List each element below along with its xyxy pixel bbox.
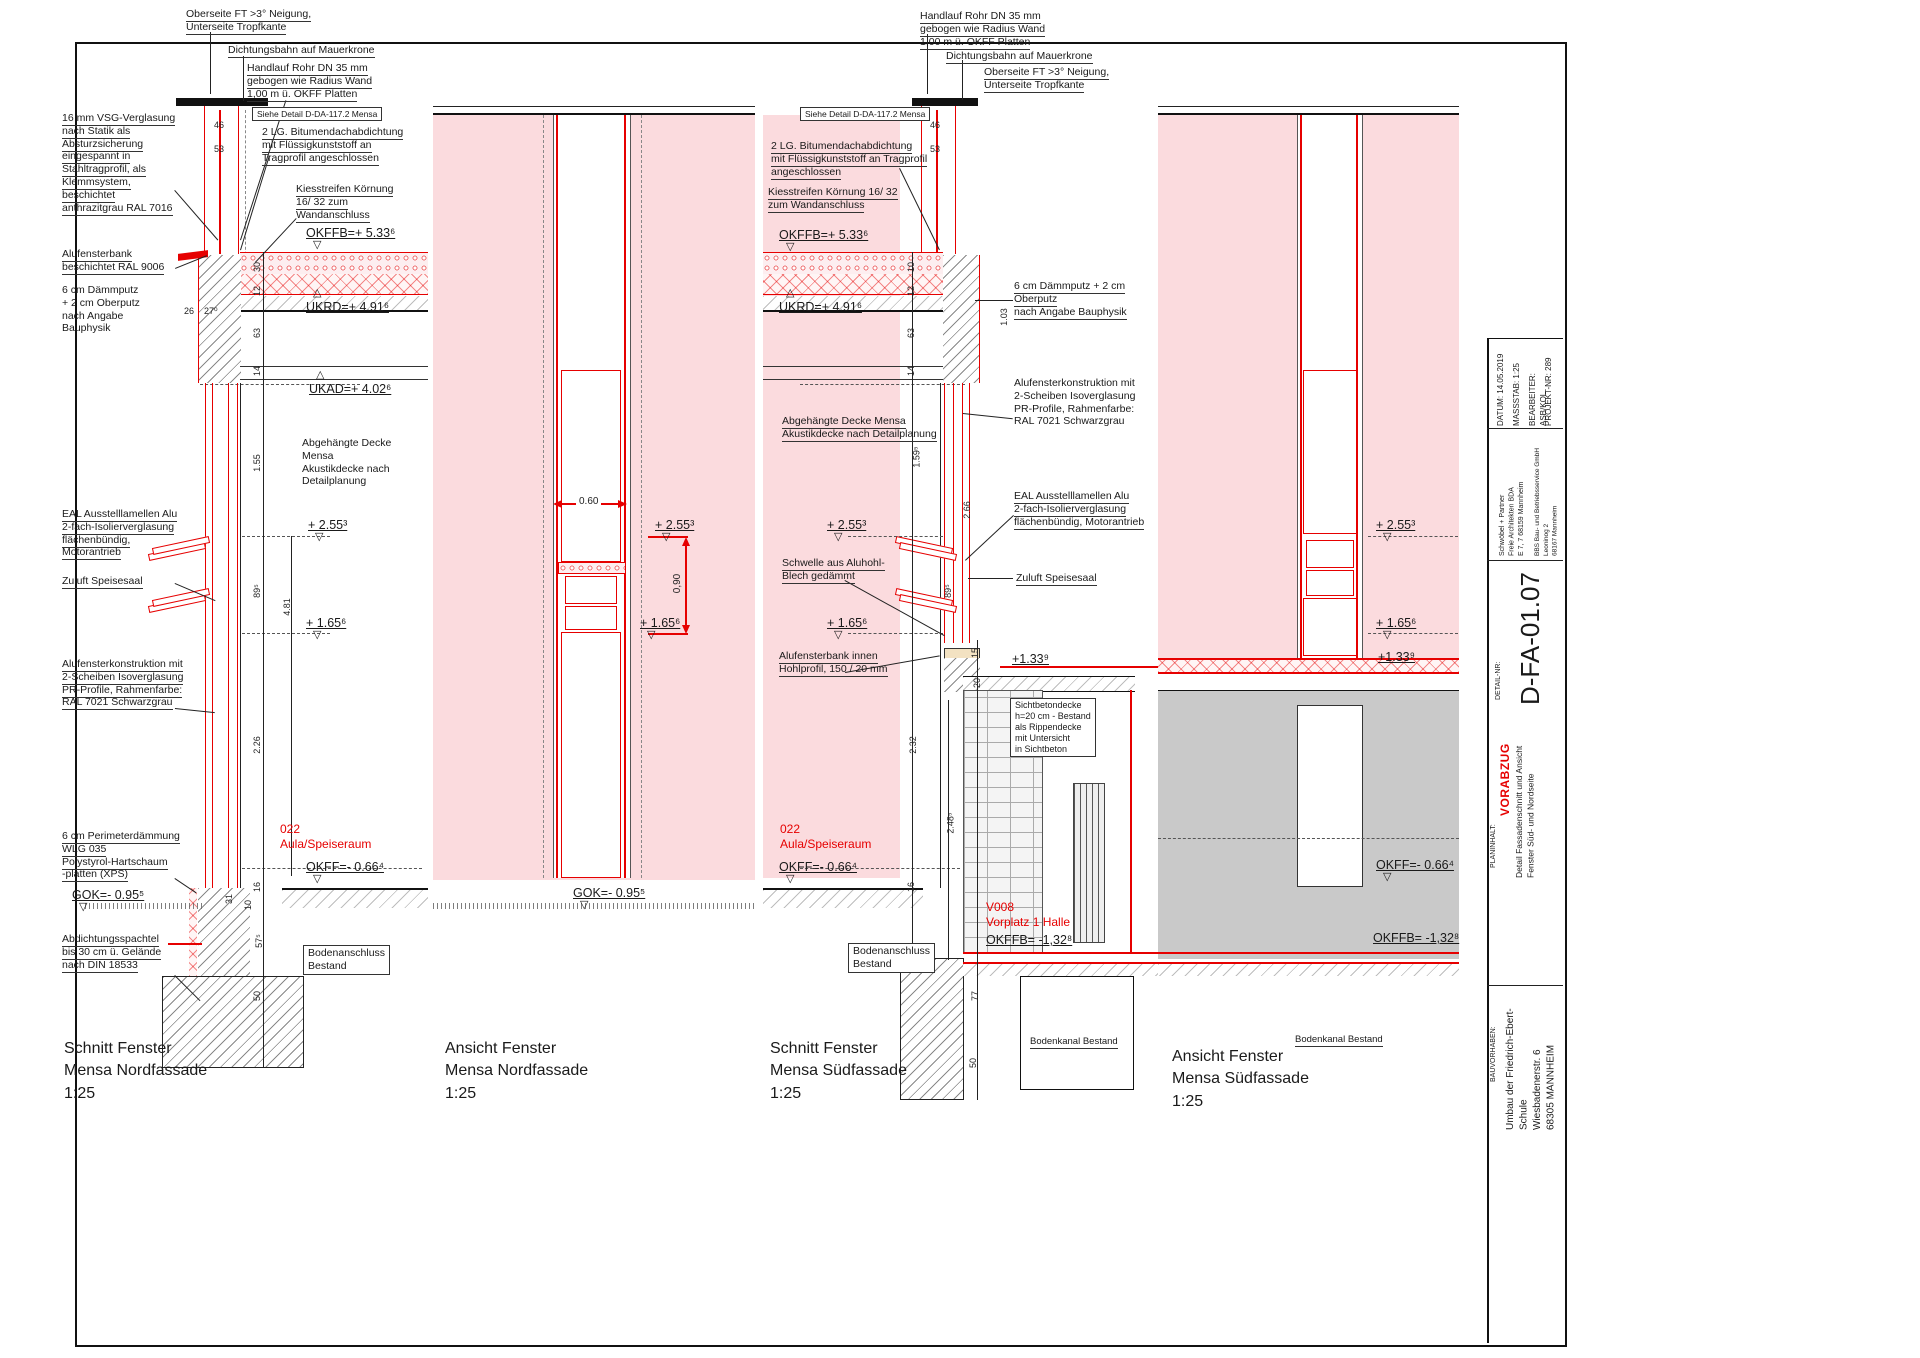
detail-reference-box: Siehe Detail D-DA-117.2 Mensa (252, 107, 382, 121)
dim-159: 1.59⁵ (912, 446, 922, 467)
panel-title-ansicht-nord: Ansicht Fenster Mensa Nordfassade 1:25 (445, 1038, 588, 1105)
elevation-okff: OKFF=- 0.66⁴▽ (1376, 858, 1454, 872)
dim-14: 14 (906, 366, 916, 376)
ground-line (433, 903, 755, 909)
cut-line-dashed (641, 115, 642, 878)
leader-line (975, 300, 1013, 301)
detail-reference-box: Siehe Detail D-DA-117.2 Mensa (800, 107, 930, 121)
dim-53: 53 (214, 144, 224, 154)
level-marker-icon: ▽ (786, 874, 794, 885)
date: DATUM: 14.05.2019 (1496, 341, 1507, 426)
floor-slab (763, 888, 923, 908)
dim-248: 2.48⁵ (946, 812, 956, 833)
project-name: Umbau der Friedrich-Ebert-Schule Wiesbad… (1504, 990, 1558, 1130)
floor-line-red (1158, 952, 1459, 954)
elevation-okff: OKFF=- 0.66⁴▽ (779, 860, 857, 874)
radiator (1073, 783, 1105, 943)
elevation-165: + 1.65⁶▽ (1376, 616, 1416, 630)
level-marker-icon: ▽ (580, 900, 588, 911)
level-marker-icon: △ (313, 288, 321, 299)
annotation-alukonstruktion: Alufensterkonstruktion mit 2-Scheiben Is… (62, 658, 183, 709)
dim-16: 16 (906, 882, 916, 892)
elevation-165: + 1.65⁶▽ (827, 616, 867, 630)
lamella-vent-upper (895, 542, 957, 564)
window-pane-lower (1303, 598, 1357, 656)
window-jamb (1300, 115, 1302, 665)
elevation-255: + 2.55³▽ (1376, 518, 1415, 532)
window-frame-inner (228, 383, 238, 888)
dim-line-red (685, 540, 687, 630)
panel-title-schnitt-sued: Schnitt Fenster Mensa Südfassade 1:25 (770, 1038, 907, 1105)
window-pane-upper (1303, 370, 1357, 534)
annotation-perimeter: 6 cm Perimeterdämmung WLG 035 Polystyrol… (62, 830, 180, 881)
level-marker-icon: ▽ (1383, 872, 1391, 883)
elevation-255: + 2.55³▽ (308, 518, 347, 532)
dim-line (977, 640, 978, 1100)
level-marker-icon: ▽ (834, 532, 842, 543)
glass-center-line (936, 110, 938, 254)
leader-line (210, 32, 211, 94)
dim-arrow (618, 500, 627, 508)
annotation-decke: Abgehängte Decke Mensa Akustikdecke nach… (782, 415, 937, 441)
window-pane-vent2 (565, 606, 617, 630)
vorabzug-stamp: VORABZUG (1497, 736, 1513, 816)
dim-16: 16 (252, 882, 262, 892)
floor-slab (282, 888, 428, 908)
plan-content-label: PLANINHALT: (1489, 798, 1498, 868)
level-marker-icon: ▽ (662, 532, 670, 543)
dim-14: 14 (252, 366, 262, 376)
floor-hatch (1158, 964, 1459, 976)
parapet-line (1158, 106, 1459, 107)
sill-line-red (1158, 672, 1459, 674)
level-marker-icon: ▽ (313, 630, 321, 641)
room-label: 022 Aula/Speiseraum (780, 822, 871, 851)
dim-46: 46 (930, 120, 940, 130)
dim-arrow (553, 500, 562, 508)
leader-line (968, 578, 1013, 579)
elevation-ukrd: UKRD=+ 4.91⁶△ (306, 300, 389, 314)
dim-57: 57⁵ (254, 934, 264, 948)
dim-arrow (682, 625, 690, 634)
annotation-fensterbank: Alufensterbank beschichtet RAL 9006 (62, 248, 164, 274)
annotation-alukonstruktion: Alufensterkonstruktion mit 2-Scheiben Is… (1014, 377, 1135, 428)
dim-30: 30 (252, 262, 262, 272)
level-marker-icon: ▽ (79, 902, 87, 913)
dim-103: 1.03 (999, 308, 1009, 326)
level-marker-icon: ▽ (315, 532, 323, 543)
drawing-sheet: 16 mm VSG-Verglasung nach Statik als Abs… (0, 0, 1920, 1358)
window-pane-vent2 (1306, 570, 1354, 596)
scale: MASSSTAB: 1:25 (1512, 341, 1523, 426)
dim-15: 15 (970, 648, 980, 658)
dim-63: 63 (906, 328, 916, 338)
ceiling-band (240, 366, 428, 380)
annotation-zuluft: Zuluft Speisesaal (62, 575, 143, 588)
base-wall (900, 958, 964, 1100)
annotation-bodenkanal: Bodenkanal Bestand (1295, 1034, 1383, 1046)
dim-63: 63 (252, 328, 262, 338)
annotation-handlauf: Handlauf Rohr DN 35 mm gebogen wie Radiu… (920, 10, 1045, 48)
level-line-red (1000, 666, 1158, 668)
dim-12: 12 (906, 286, 916, 296)
parapet-cap (912, 98, 978, 106)
annotation-oberseite: Oberseite FT >3° Neigung, Unterseite Tro… (984, 66, 1109, 92)
level-marker-icon: △ (316, 370, 324, 381)
annotation-vsg: 16 mm VSG-Verglasung nach Statik als Abs… (62, 112, 180, 214)
window-bestand (1297, 705, 1363, 887)
dim-090: 0,90 (672, 574, 683, 593)
room-label: V008 Vorplatz 1 Halle (986, 900, 1070, 929)
level-marker-icon: △ (786, 288, 794, 299)
annotation-bodenanschluss: Bodenanschluss Bestand (848, 943, 935, 973)
masonry-wall (943, 255, 980, 383)
wall-line (940, 383, 941, 888)
elevation-gok: GOK=- 0.95⁵▽ (573, 886, 645, 900)
elevation-ukad: UKAD=+ 4.02⁶△ (309, 382, 391, 396)
ground-line (85, 903, 203, 909)
annotation-fensterbank-innen: Alufensterbank innen Hohlprofil, 150 / 2… (779, 650, 888, 676)
detail-number: D-FA-01.07 (1513, 555, 1548, 705)
dim-line (912, 252, 913, 952)
level-dashed (1368, 536, 1458, 537)
level-marker-icon: ▽ (313, 874, 321, 885)
bodenkanal-pit (1020, 976, 1134, 1090)
panel-title-schnitt-nord: Schnitt Fenster Mensa Nordfassade 1:25 (64, 1038, 207, 1105)
title-block-divider (1487, 428, 1563, 429)
dim-53: 53 (930, 144, 940, 154)
axis-dashed (245, 110, 246, 270)
vorplatz-floor-red (963, 952, 1158, 954)
wall-line (240, 383, 241, 888)
annotation-dichtungsbahn: Dichtungsbahn auf Mauerkrone (946, 50, 1093, 63)
annotation-sichtbeton: Sichtbetondecke h=20 cm - Bestand als Ri… (1010, 698, 1096, 757)
dim-10: 10 (243, 900, 253, 910)
annotation-handlauf: Handlauf Rohr DN 35 mm gebogen wie Radiu… (247, 62, 372, 100)
dim-226: 2.26 (252, 736, 262, 754)
dim-89: 89⁵ (943, 584, 953, 598)
annotation-abdichtung: Abdichtungsspachtel bis 30 cm ü. Gelände… (62, 933, 161, 971)
dim-50: 50 (252, 991, 262, 1001)
roof-insulation (240, 274, 428, 295)
elevation-165: + 1.65⁶▽ (640, 616, 680, 630)
elevation-okff: OKFF=- 0.66⁴▽ (306, 860, 384, 874)
annotation-bodenanschluss: Bodenanschluss Bestand (303, 945, 390, 975)
dim-arrow (682, 537, 690, 546)
title-block-divider (1487, 985, 1563, 986)
annotation-daemmputz: 6 cm Dämmputz + 2 cm Oberputz nach Angab… (1014, 280, 1127, 318)
dim-10: 10 (906, 262, 916, 272)
elevation-ukrd: UKRD=+ 4.91⁶△ (779, 300, 862, 314)
level-dashed (1158, 838, 1459, 839)
red-step-line (168, 943, 202, 945)
annotation-bodenkanal: Bodenkanal Bestand (1030, 1036, 1118, 1048)
annotation-zuluft: Zuluft Speisesaal (1016, 572, 1097, 585)
dim-89: 89⁵ (252, 584, 262, 598)
dim-27: 27⁰ (204, 306, 218, 317)
dim-20: 20 (972, 678, 982, 688)
dim-31: 31 (224, 894, 234, 904)
annotation-eal: EAL Ausstelllamellen Alu 2-fach-Isolierv… (1014, 490, 1144, 528)
project-label: BAUVORHABEN: (1489, 990, 1498, 1082)
elevation-133: +1.33⁹ (1012, 652, 1049, 666)
detail-number-label: DETAIL-NR: (1494, 640, 1503, 700)
annotation-decke: Abgehängte Decke Mensa Akustikdecke nach… (302, 437, 391, 488)
dim-266: 2.66 (962, 501, 972, 519)
window-jamb (624, 115, 626, 878)
level-marker-icon: ▽ (786, 242, 794, 253)
elevation-255: + 2.55³▽ (655, 518, 694, 532)
elevation-okffb-vorplatz: OKFFB= -1,32⁸ (1373, 931, 1459, 945)
gravel-strip (240, 252, 428, 275)
annotation-dichtungsbahn: Dichtungsbahn auf Mauerkrone (228, 44, 375, 57)
plan-content: Detail Fassadenschnitt und Ansicht Fenst… (1514, 700, 1537, 878)
client-firm: BBS Bau- und Betriebsservice GmbH Leonin… (1534, 432, 1560, 556)
window-jamb (556, 115, 558, 878)
elevation-okffb-vorplatz: OKFFB= -1,32⁸ (986, 933, 1072, 947)
elevation-okffb: OKFFB=+ 5.33⁶▽ (779, 228, 868, 242)
level-marker-icon: ▽ (1383, 630, 1391, 641)
title-block-divider (1487, 338, 1563, 339)
annotation-daemmputz: 6 cm Dämmputz + 2 cm Oberputz nach Angab… (62, 284, 140, 335)
level-dashed (1368, 633, 1458, 634)
lamella-vent-lower (148, 594, 210, 616)
room-label: 022 Aula/Speiseraum (280, 822, 371, 851)
elevation-okffb: OKFFB=+ 5.33⁶▽ (306, 226, 395, 240)
annotation-schwelle: Schwelle aus Aluhohl- Blech gedämmt (782, 557, 885, 583)
annotation-bitumen: 2 LG. Bitumendachabdichtung mit Flüssigk… (771, 140, 927, 178)
level-marker-icon: ▽ (834, 630, 842, 641)
window-pane-lower (561, 632, 621, 878)
xps-perimeter (189, 888, 197, 976)
annotation-kiesstreifen: Kiesstreifen Körnung 16/ 32 zum Wandansc… (296, 183, 393, 221)
dim-232: 2.32 (908, 736, 918, 754)
dim-155: 1.55 (252, 454, 262, 472)
dim-26: 26 (184, 306, 194, 316)
level-dashed (848, 633, 943, 634)
level-marker-icon: ▽ (313, 240, 321, 251)
editor: BEARBEITER: ASB/KOL (1528, 341, 1550, 426)
level-dashed (848, 536, 943, 537)
window-pane-vent1 (565, 576, 617, 604)
level-marker-icon: ▽ (1383, 532, 1391, 543)
panel-title-ansicht-sued: Ansicht Fenster Mensa Südfassade 1:25 (1172, 1046, 1309, 1113)
level-marker-icon: ▽ (647, 630, 655, 641)
elevation-133: +1.33⁹ (1378, 650, 1415, 664)
dim-46: 46 (214, 120, 224, 130)
elevation-165: + 1.65⁶▽ (306, 616, 346, 630)
dim-12: 12 (252, 286, 262, 296)
architect-firm: Schwöbel + Partner Freie Architekten BDA… (1498, 432, 1526, 556)
window-pane-vent1 (1306, 540, 1354, 568)
dim-77: 77 (970, 991, 980, 1001)
window-frame-outer (205, 383, 213, 888)
masonry-wall (198, 255, 241, 383)
annotation-bitumen: 2 LG. Bitumendachabdichtung mit Flüssigk… (262, 126, 403, 164)
elevation-255: + 2.55³▽ (827, 518, 866, 532)
leader-line (243, 56, 244, 101)
dim-50: 50 (968, 1058, 978, 1068)
cut-line-dashed (543, 115, 544, 878)
elevation-gok: GOK=- 0.95⁵▽ (72, 888, 144, 902)
glass-center-line (219, 110, 221, 254)
annotation-kiesstreifen: Kiesstreifen Körnung 16/ 32 zum Wandansc… (768, 186, 898, 212)
parapet-line (433, 106, 755, 107)
dim-481: 4.81 (282, 598, 292, 616)
glass-line-vorplatz (1130, 690, 1132, 952)
leader-line (962, 60, 963, 100)
window-pane-upper (561, 370, 621, 562)
annotation-eal: EAL Ausstelllamellen Alu 2-fach-Isolierv… (62, 508, 177, 559)
dim-060: 0.60 (576, 496, 601, 507)
vent-band (558, 562, 626, 574)
annotation-oberseite: Oberseite FT >3° Neigung, Unterseite Tro… (186, 8, 311, 34)
vorplatz-floor-hatch (963, 964, 1158, 976)
